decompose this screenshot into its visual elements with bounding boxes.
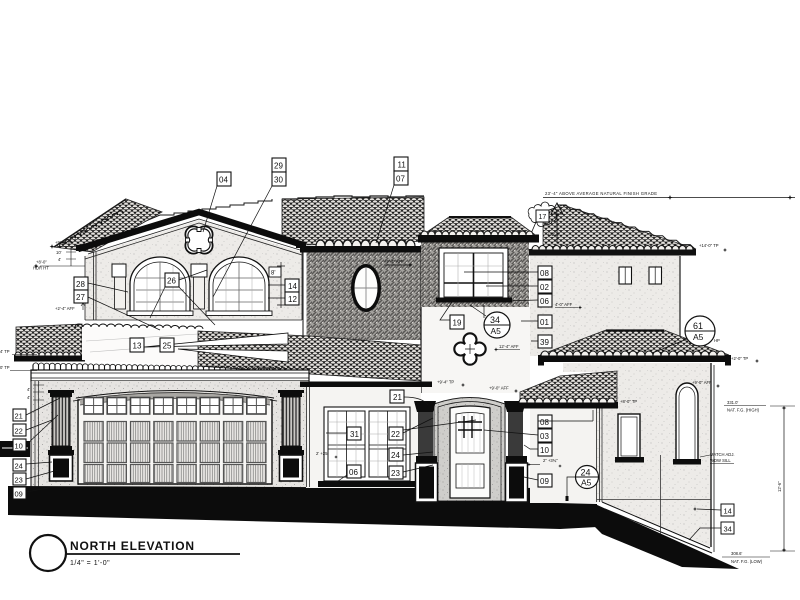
svg-text:61: 61 [693, 321, 703, 331]
svg-text:24: 24 [391, 451, 400, 460]
svg-text:22: 22 [391, 430, 400, 439]
svg-text:+2'-0" TP: +2'-0" TP [731, 356, 748, 361]
svg-text:24: 24 [15, 462, 23, 471]
svg-text:09: 09 [15, 490, 23, 499]
svg-text:06: 06 [540, 297, 549, 306]
svg-text:23: 23 [15, 476, 23, 485]
svg-text:22: 22 [15, 427, 23, 436]
svg-text:0' TP: 0' TP [0, 365, 10, 370]
svg-text:NAT. F.G. (LOW): NAT. F.G. (LOW) [731, 559, 763, 564]
svg-text:+9'-4" TP: +9'-4" TP [437, 380, 454, 385]
svg-text:4'-0" AFF: 4'-0" AFF [555, 302, 573, 307]
svg-text:+9'-0" AFF: +9'-0" AFF [692, 380, 712, 385]
svg-text:+14'-0" TP: +14'-0" TP [699, 243, 719, 248]
svg-text:+8'-0" TP: +8'-0" TP [620, 399, 637, 404]
svg-text:4': 4' [58, 257, 61, 262]
svg-text:A5: A5 [693, 332, 704, 342]
svg-text:2' +25': 2' +25' [316, 451, 328, 456]
svg-text:39: 39 [540, 338, 549, 347]
svg-text:4' TP: 4' TP [0, 349, 10, 354]
svg-text:25: 25 [163, 342, 172, 351]
svg-text:13: 13 [133, 342, 142, 351]
svg-text:NAT. F.G. (HIGH): NAT. F.G. (HIGH) [727, 408, 760, 413]
svg-text:19: 19 [453, 319, 462, 328]
svg-text:24: 24 [581, 468, 591, 478]
svg-text:11: 11 [398, 161, 407, 170]
svg-text:10: 10 [540, 446, 549, 455]
svg-text:308.6': 308.6' [731, 551, 742, 556]
svg-text:23'-4" ABOVE AVERAGE NATURAL F: 23'-4" ABOVE AVERAGE NATURAL FINISH GRAD… [545, 191, 657, 196]
svg-text:12'-6": 12'-6" [777, 481, 782, 492]
svg-text:A5: A5 [581, 478, 592, 488]
svg-text:A5: A5 [491, 326, 502, 336]
svg-text:+2'-4" AFF: +2'-4" AFF [55, 306, 75, 311]
svg-text:4': 4' [27, 387, 30, 392]
svg-text:1/4" = 1'-0": 1/4" = 1'-0" [70, 560, 110, 567]
svg-text:+8'-0": +8'-0" [36, 260, 47, 265]
svg-text:21: 21 [15, 412, 23, 421]
svg-text:8': 8' [271, 271, 275, 277]
svg-text:HP: HP [714, 338, 720, 343]
svg-text:02: 02 [540, 283, 549, 292]
svg-text:NORTH ELEVATION: NORTH ELEVATION [70, 539, 195, 553]
svg-text:31: 31 [350, 430, 359, 439]
svg-text:MATCH ADJ.: MATCH ADJ. [710, 452, 735, 457]
svg-text:+9'-4" AFF: +9'-4" AFF [384, 259, 404, 264]
svg-text:WDW SILL: WDW SILL [710, 458, 731, 463]
svg-text:26: 26 [167, 277, 176, 286]
svg-text:09: 09 [540, 477, 549, 486]
svg-text:04: 04 [219, 176, 228, 185]
svg-text:06: 06 [349, 468, 358, 477]
svg-text:2" +3¾": 2" +3¾" [543, 458, 558, 463]
svg-text:08: 08 [540, 269, 549, 278]
svg-text:29: 29 [274, 162, 283, 171]
svg-text:+22'-0": +22'-0" [547, 232, 561, 237]
svg-text:10: 10 [15, 442, 23, 451]
svg-text:21: 21 [393, 393, 402, 402]
svg-text:30: 30 [274, 176, 283, 185]
svg-text:14: 14 [288, 282, 297, 291]
svg-text:4': 4' [27, 395, 30, 400]
svg-text:17: 17 [539, 214, 547, 221]
svg-text:27: 27 [76, 293, 85, 302]
svg-text:07: 07 [396, 175, 405, 184]
svg-text:14: 14 [724, 507, 732, 516]
svg-text:10': 10' [56, 250, 62, 255]
svg-text:01: 01 [540, 318, 549, 327]
svg-text:+9'-0" TP: +9'-0" TP [55, 240, 72, 245]
svg-text:34: 34 [724, 525, 732, 534]
svg-text:12: 12 [288, 295, 297, 304]
svg-text:34: 34 [490, 315, 500, 325]
svg-text:23: 23 [391, 469, 400, 478]
svg-text:331.0': 331.0' [727, 400, 738, 405]
svg-text:12'-4" AFF: 12'-4" AFF [499, 344, 519, 349]
svg-text:03: 03 [540, 432, 549, 441]
svg-text:+9'-0" AFF: +9'-0" AFF [489, 386, 509, 391]
svg-text:08: 08 [540, 418, 549, 427]
svg-text:28: 28 [76, 280, 85, 289]
